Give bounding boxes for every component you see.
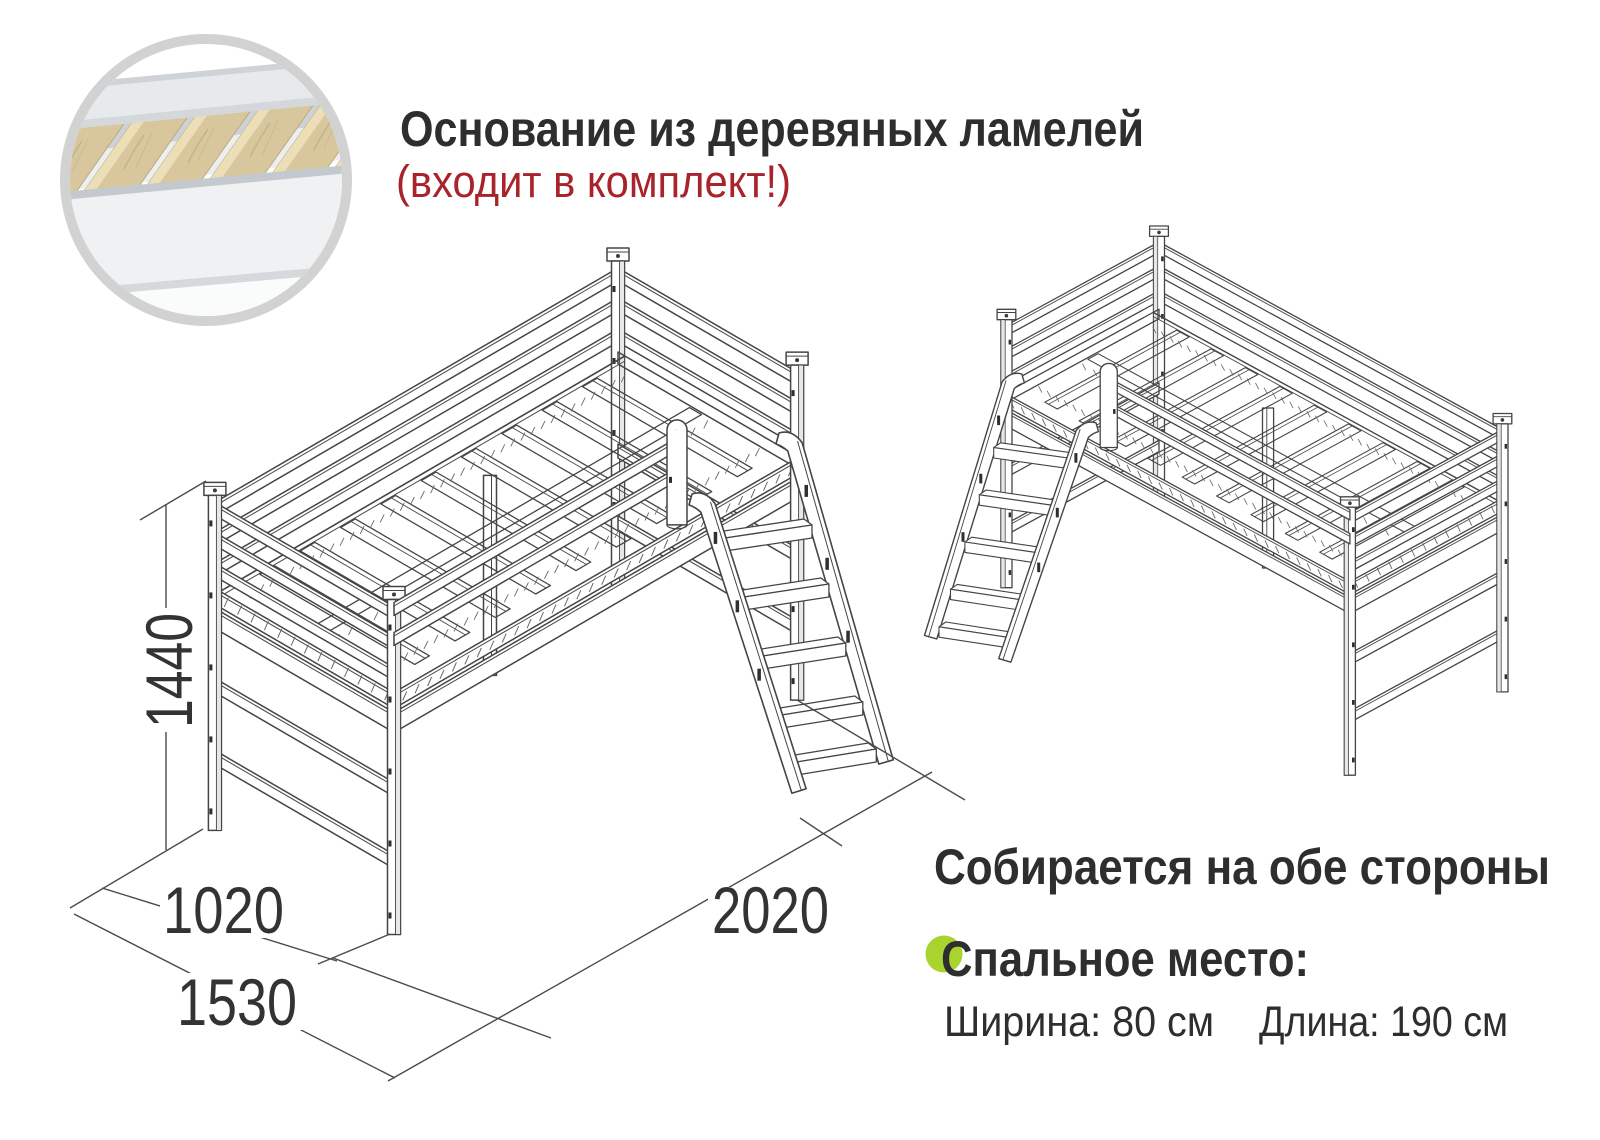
svg-text:1440: 1440 (132, 613, 206, 728)
svg-text:1530: 1530 (177, 965, 297, 1039)
svg-text:(входит в комплект!): (входит в комплект!) (396, 156, 791, 207)
svg-text:Спальное место:: Спальное место: (941, 931, 1309, 987)
svg-text:Длина: 190 см: Длина: 190 см (1259, 998, 1508, 1046)
svg-text:Собирается на обе стороны: Собирается на обе стороны (934, 839, 1550, 895)
svg-text:Основание из деревяных ламелей: Основание из деревяных ламелей (400, 101, 1144, 157)
svg-text:2020: 2020 (712, 873, 829, 947)
svg-text:Ширина: 80 см: Ширина: 80 см (944, 998, 1214, 1046)
svg-text:1020: 1020 (163, 873, 284, 947)
